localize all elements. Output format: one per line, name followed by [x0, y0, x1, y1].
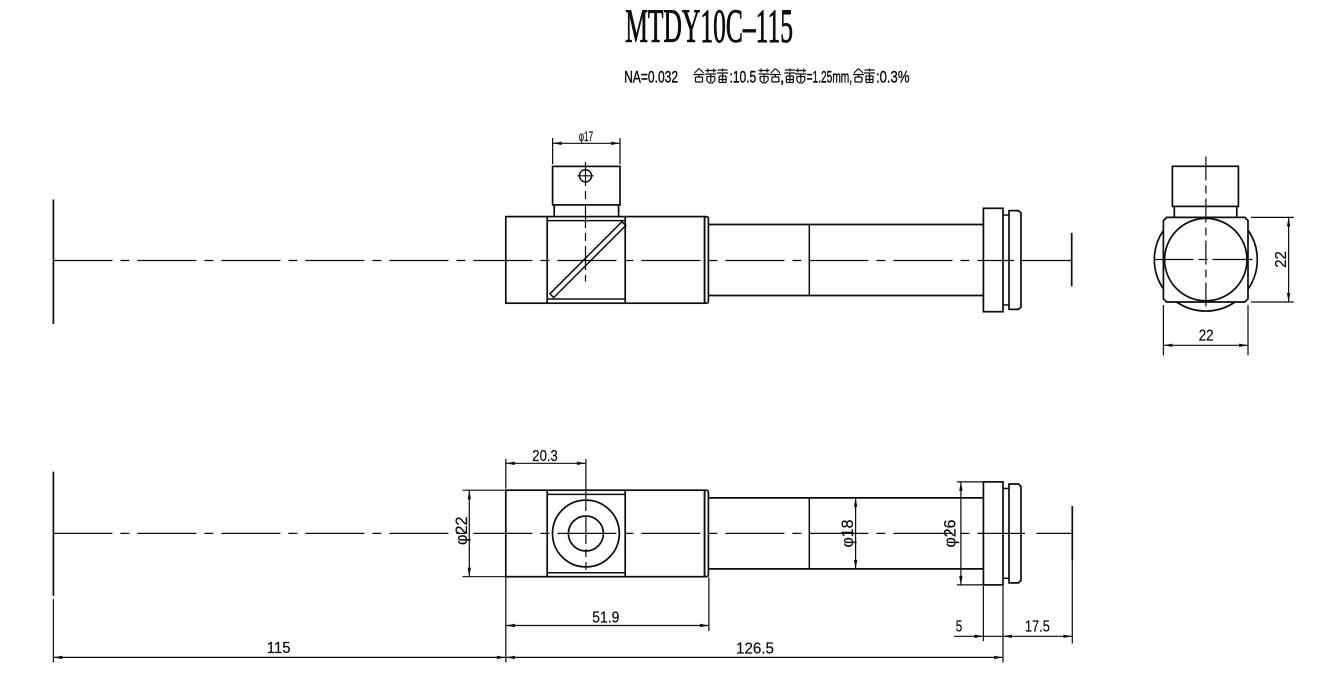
svg-text::0.3%: :0.3%: [876, 69, 910, 87]
svg-text:φ22: φ22: [452, 517, 471, 546]
svg-text:φ18: φ18: [838, 520, 857, 548]
svg-text:17.5: 17.5: [1025, 619, 1050, 636]
svg-text:φ26: φ26: [941, 520, 960, 548]
svg-text:51.9: 51.9: [592, 610, 619, 627]
svg-text:22: 22: [1273, 251, 1290, 268]
svg-text:115: 115: [267, 640, 291, 657]
svg-text:126.5: 126.5: [736, 641, 774, 658]
svg-text:MTDY10C–115: MTDY10C–115: [625, 0, 793, 53]
svg-text:φ17: φ17: [579, 129, 593, 144]
svg-text:5: 5: [956, 619, 963, 636]
svg-text::10.5: :10.5: [730, 69, 757, 87]
svg-text:NA=0.032: NA=0.032: [624, 69, 678, 87]
svg-text:20.3: 20.3: [532, 448, 558, 465]
svg-text:22: 22: [1199, 328, 1214, 345]
svg-text:,: ,: [780, 69, 785, 87]
svg-text:=1.25mm,: =1.25mm,: [807, 69, 853, 87]
